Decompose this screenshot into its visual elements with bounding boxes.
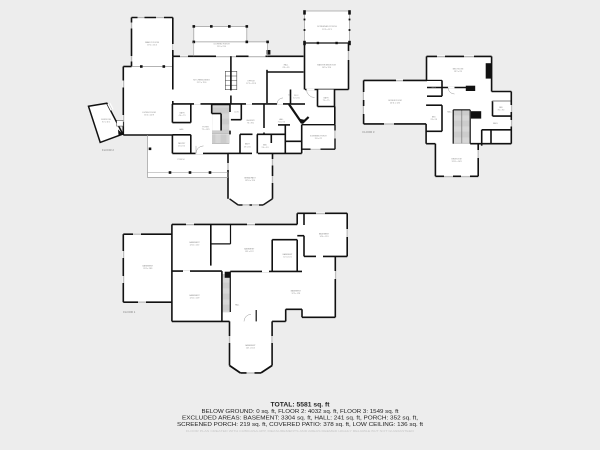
svg-text:5'8 x 5'0: 5'8 x 5'0: [244, 146, 251, 148]
svg-text:BASEMENT: BASEMENT: [291, 290, 302, 293]
svg-text:19'1 x 13'4: 19'1 x 13'4: [147, 45, 158, 47]
svg-text:25'0 x 9'10: 25'0 x 9'10: [217, 46, 226, 48]
svg-text:20'2 x 28'4: 20'2 x 28'4: [143, 268, 153, 270]
svg-text:HALL: HALL: [447, 111, 451, 114]
svg-text:HALL: HALL: [279, 118, 283, 121]
svg-text:13'4 x 15'2: 13'4 x 15'2: [245, 251, 254, 253]
svg-text:12'11 x 12'9: 12'11 x 12'9: [190, 298, 200, 300]
svg-text:BELOW GROUND: 0 sq. ft, FLOOR: BELOW GROUND: 0 sq. ft, FLOOR 2: 4032 sq…: [202, 409, 399, 415]
svg-text:FLOOR PLAN CREATED WITH CUBICA: FLOOR PLAN CREATED WITH CUBICASA APP, ME…: [186, 429, 414, 433]
svg-text:21'2 x 15'6: 21'2 x 15'6: [197, 82, 208, 84]
svg-text:4'0 x 6'2: 4'0 x 6'2: [178, 146, 185, 148]
svg-text:BASEMENT: BASEMENT: [319, 233, 330, 236]
svg-text:7'2 x 13'9: 7'2 x 13'9: [202, 129, 210, 131]
svg-text:8'9 x 5'6: 8'9 x 5'6: [283, 67, 290, 69]
svg-text:7'6 x 9'11: 7'6 x 9'11: [247, 123, 254, 125]
svg-text:MASTER BEDROOM: MASTER BEDROOM: [317, 64, 336, 67]
svg-text:19'2 x 11'5: 19'2 x 11'5: [322, 29, 333, 31]
svg-text:BATH: BATH: [245, 143, 250, 146]
svg-text:BASEMENT: BASEMENT: [245, 344, 256, 347]
svg-text:4'0 x 7'3: 4'0 x 7'3: [179, 115, 186, 117]
svg-text:BATH: BATH: [180, 112, 185, 115]
svg-text:FLOOR 3: FLOOR 3: [363, 130, 375, 134]
svg-text:EXCLUDED AREAS: BASEMENT: 3304: EXCLUDED AREAS: BASEMENT: 3304 sq. ft, H…: [182, 415, 418, 421]
svg-text:12'2 x 15'8: 12'2 x 15'8: [246, 83, 257, 85]
svg-text:BREAKFAST: BREAKFAST: [244, 177, 256, 180]
svg-text:BASEMENT: BASEMENT: [189, 294, 200, 297]
svg-text:HALL: HALL: [284, 64, 289, 67]
svg-text:FLOOR 1: FLOOR 1: [123, 310, 135, 314]
svg-text:BATH: BATH: [324, 97, 329, 100]
svg-text:13'10 x 15'4: 13'10 x 15'4: [245, 180, 256, 182]
svg-text:BASEMENT: BASEMENT: [283, 253, 294, 256]
svg-text:20'11 x 14'5: 20'11 x 14'5: [390, 103, 400, 105]
svg-text:9'2 x 11'6: 9'2 x 11'6: [102, 122, 110, 124]
svg-text:BATH: BATH: [432, 86, 437, 89]
svg-text:9'5 x 5'8: 9'5 x 5'8: [431, 119, 437, 121]
svg-text:BASEMENT: BASEMENT: [143, 265, 154, 268]
svg-text:14'1 x 16'4: 14'1 x 16'4: [246, 348, 255, 350]
svg-text:BASEMENT: BASEMENT: [244, 248, 255, 251]
svg-text:7'11 x 6'3: 7'11 x 6'3: [278, 122, 285, 124]
svg-text:14'9 x 15'4: 14'9 x 15'4: [322, 67, 332, 69]
svg-text:TOTAL: 5581 sq. ft: TOTAL: 5581 sq. ft: [271, 401, 330, 408]
svg-text:6'2 x 6'0: 6'2 x 6'0: [293, 98, 299, 100]
svg-text:16'5 x 22'8: 16'5 x 22'8: [144, 115, 155, 117]
svg-text:19'2 x 9'5: 19'2 x 9'5: [454, 71, 462, 73]
svg-text:11'0 x 8'2: 11'0 x 8'2: [315, 138, 322, 140]
svg-text:5'0 x 5'4: 5'0 x 5'4: [262, 147, 269, 149]
svg-text:SCREENED PORCH: 219 sq. ft, CO: SCREENED PORCH: 219 sq. ft, COVERED PATI…: [177, 422, 423, 428]
svg-text:BASEMENT: BASEMENT: [189, 241, 200, 244]
svg-text:FAMILY ROOM: FAMILY ROOM: [145, 41, 159, 44]
svg-text:8'2 x 9'0: 8'2 x 9'0: [498, 109, 504, 111]
svg-text:FLOOR 2: FLOOR 2: [102, 148, 114, 152]
svg-text:13'11 x 10'8: 13'11 x 10'8: [451, 161, 461, 163]
svg-text:10'1 x 10'1: 10'1 x 10'1: [283, 257, 291, 259]
svg-text:12'11 x 15'2: 12'11 x 15'2: [190, 245, 200, 247]
svg-text:HALL: HALL: [179, 128, 183, 131]
svg-text:HALL: HALL: [235, 304, 239, 307]
svg-text:7'5 x 7'5: 7'5 x 7'5: [323, 100, 330, 102]
svg-text:PORCH: PORCH: [178, 159, 185, 161]
svg-text:BATH: BATH: [493, 122, 498, 125]
svg-text:14'0 x 12'4: 14'0 x 12'4: [320, 236, 329, 238]
svg-text:12'2 x 11'8: 12'2 x 11'8: [291, 293, 300, 295]
svg-text:PANTRY: PANTRY: [178, 142, 186, 145]
svg-text:LAUNDRY: LAUNDRY: [246, 119, 255, 122]
